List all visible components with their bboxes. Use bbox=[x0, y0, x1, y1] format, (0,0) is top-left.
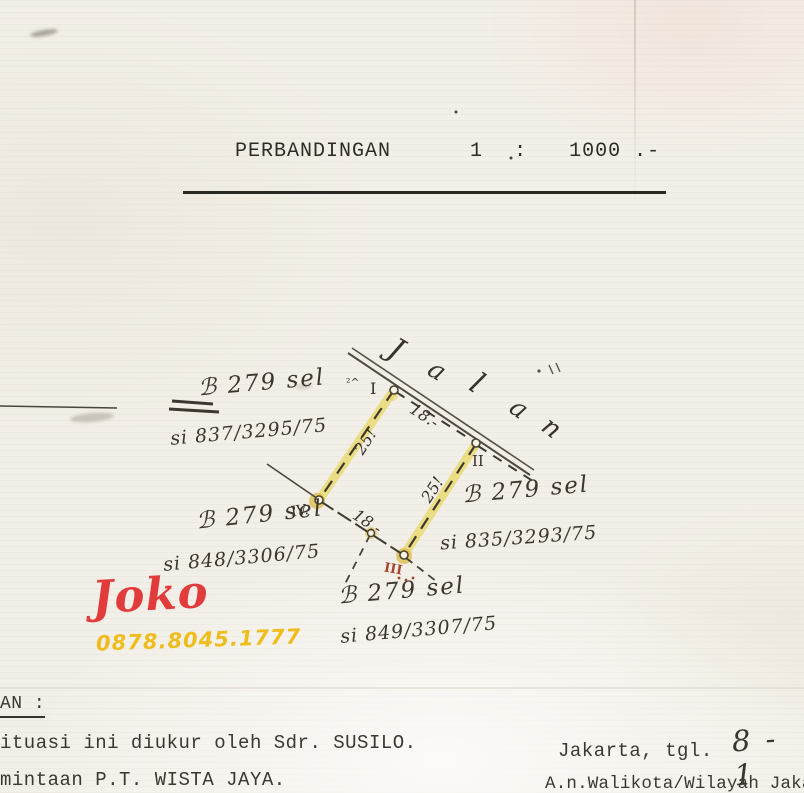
measurement-right-edge: 25! bbox=[417, 473, 448, 506]
parcel-label-right: ℬ 279 sel bbox=[461, 471, 590, 508]
road-name-letter: a bbox=[422, 354, 451, 388]
parcel-name: ℬ 279 sel bbox=[197, 364, 326, 401]
watermark-name: Joko bbox=[91, 565, 210, 624]
parcel-label-bottom: ℬ 279 sel bbox=[337, 572, 466, 609]
parcel-label-topleft: ℬ 279 sel bbox=[195, 364, 326, 401]
parcel-ref-bottom: si 849/3307/75 bbox=[339, 612, 498, 648]
corner-mark-iii-red: III bbox=[383, 561, 404, 579]
corner-mark-ii: II bbox=[472, 452, 484, 470]
scale-ratio-right: 1000 .- bbox=[569, 140, 660, 163]
road-name-letter: n bbox=[536, 411, 568, 445]
footer-measured-by: ituasi ini diukur oleh Sdr. SUSILO. bbox=[0, 732, 417, 754]
footer-requested-by: mintaan P.T. WISTA JAYA. bbox=[0, 769, 286, 791]
scale-colon: : bbox=[514, 140, 527, 163]
parcel-label-left: ℬ 279 sel bbox=[195, 495, 324, 534]
scale-title: PERBANDINGAN1:1000 .- bbox=[183, 117, 666, 194]
fold-line bbox=[0, 687, 804, 689]
road-name-letter: J bbox=[382, 331, 410, 367]
corner-flourish: ²^ bbox=[346, 376, 360, 389]
measurement-bottom-edge: 18.- bbox=[349, 505, 385, 538]
scale-label: PERBANDINGAN bbox=[235, 140, 391, 163]
footer-heading: AN : bbox=[0, 694, 45, 718]
road-name-letter: a bbox=[504, 392, 534, 425]
corner-mark-i: I bbox=[370, 379, 376, 398]
scanned-survey-document: PERBANDINGAN1:1000 .- bbox=[0, 0, 804, 793]
ink-smudge bbox=[30, 28, 59, 39]
measurement-top-edge: 18.- bbox=[406, 399, 442, 432]
ink-smudge bbox=[70, 411, 115, 424]
parcel-ref-right: si 835/3293/75 bbox=[439, 522, 598, 555]
parcel-ref-topleft: si 837/3295/75 bbox=[169, 414, 328, 450]
road-name-letter: l bbox=[463, 366, 491, 400]
footer-authority: A.n.Walikota/Wilayah Jakart bbox=[545, 774, 804, 793]
measurement-left-edge: 25! bbox=[350, 425, 381, 458]
footer-city-date: Jakarta, tgl. bbox=[558, 740, 713, 762]
watermark-phone: 0878.8045.1777 bbox=[96, 624, 302, 655]
scale-ratio-left: 1 bbox=[470, 140, 483, 163]
